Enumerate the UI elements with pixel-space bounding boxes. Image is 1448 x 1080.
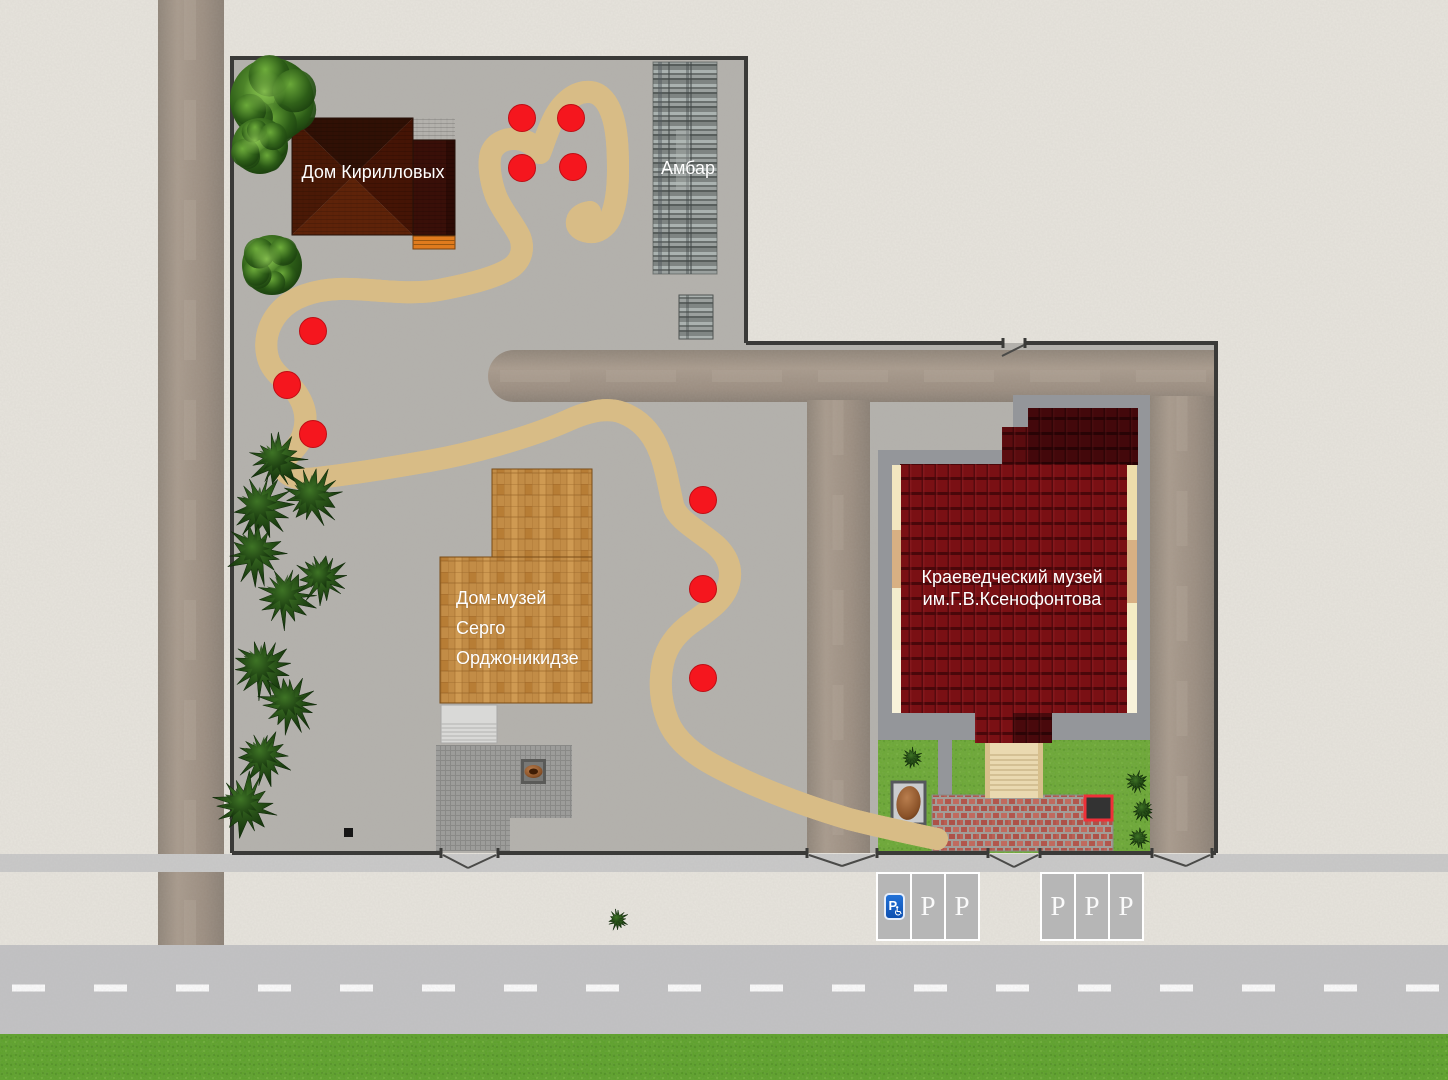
parking-stall: P: [910, 872, 946, 941]
label-barn: Амбар: [661, 159, 715, 177]
courtyard-well: [521, 759, 546, 784]
building-barn-annex: [679, 295, 713, 339]
route-marker-dot: [690, 576, 717, 603]
parking-group-2: P P P: [1040, 872, 1144, 941]
route-marker-dot: [560, 154, 587, 181]
disabled-parking-sign-icon: P: [884, 893, 905, 920]
label-ksenofontov-museum: Краеведческий музей им.Г.В.Ксенофонтова: [921, 566, 1102, 610]
parking-stall: P: [944, 872, 980, 941]
route-marker-dot: [274, 372, 301, 399]
route-marker-dot: [690, 487, 717, 514]
museum-walkway: [938, 740, 952, 797]
route-marker-dot: [509, 105, 536, 132]
parking-stall: P: [1108, 872, 1144, 941]
parking-group-1: P P P: [876, 872, 980, 941]
small-marker-square: [344, 828, 353, 837]
building-kirillov-house: [292, 118, 455, 249]
exhibit-rock: [892, 782, 925, 824]
parking-stall: P: [1074, 872, 1110, 941]
deciduous-tree-icon: [242, 235, 302, 295]
label-kirillov-house: Дом Кирилловых: [301, 163, 444, 181]
route-marker-dot: [509, 155, 536, 182]
site-map: Дом Кирилловых Амбар Дом-музей Серго Орд…: [0, 0, 1448, 1080]
red-bordered-hatch: [1085, 796, 1112, 820]
kirillov-porch: [413, 236, 455, 249]
parking-stall-disabled: P: [876, 872, 912, 941]
museum-porch: [975, 713, 1052, 743]
wheelchair-icon: [894, 906, 902, 916]
ordzhonikidze-stairs: [441, 705, 497, 743]
site-map-canvas: [0, 0, 1448, 1080]
route-marker-dot: [300, 318, 327, 345]
route-marker-dot: [300, 421, 327, 448]
parking-stall: P: [1040, 872, 1076, 941]
route-marker-dot: [690, 665, 717, 692]
museum-entrance-stairs: [985, 743, 1043, 798]
route-marker-dot: [558, 105, 585, 132]
label-ordzhonikidze-museum: Дом-музей Серго Орджоникидзе: [456, 583, 579, 673]
